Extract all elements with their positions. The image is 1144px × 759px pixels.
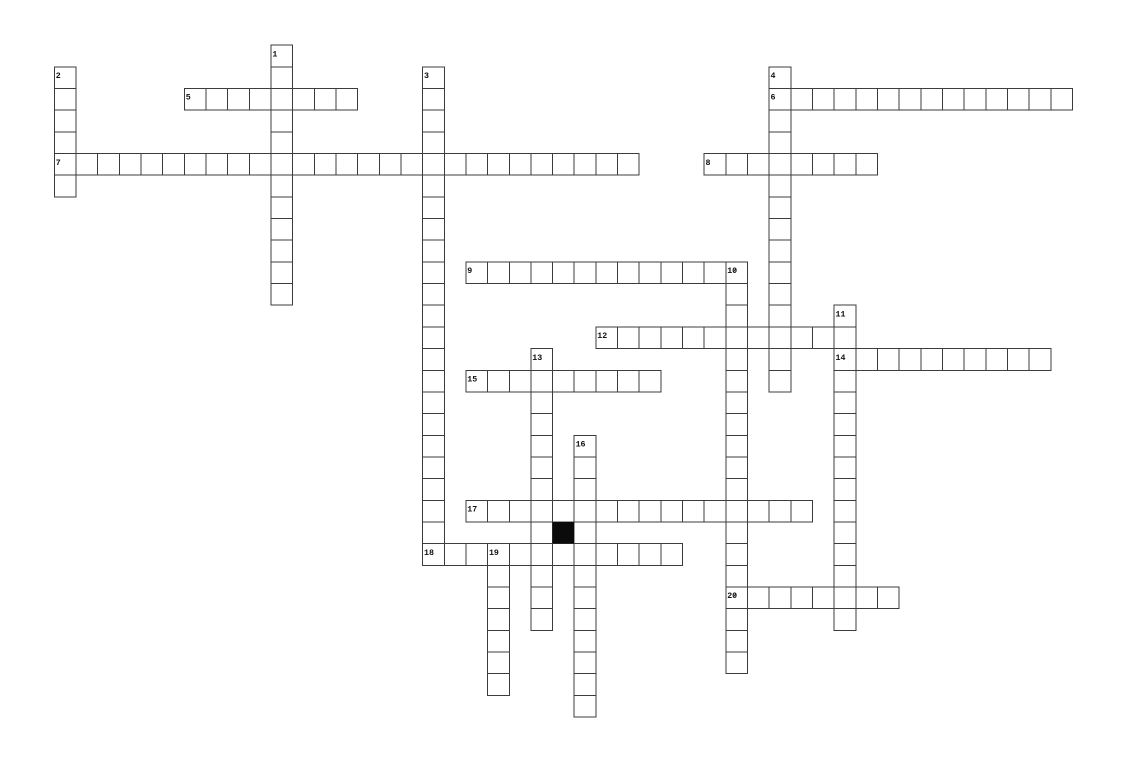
svg-text:14: 14 xyxy=(836,354,846,363)
svg-text:7: 7 xyxy=(56,159,61,168)
svg-text:12: 12 xyxy=(597,332,607,341)
svg-text:11: 11 xyxy=(836,310,846,319)
svg-text:1: 1 xyxy=(272,50,277,59)
svg-text:17: 17 xyxy=(467,505,477,514)
svg-text:9: 9 xyxy=(467,267,472,276)
svg-text:10: 10 xyxy=(727,267,737,276)
svg-text:18: 18 xyxy=(424,549,434,558)
svg-text:15: 15 xyxy=(467,375,477,384)
svg-text:6: 6 xyxy=(771,94,776,103)
svg-text:8: 8 xyxy=(706,159,711,168)
svg-text:16: 16 xyxy=(576,440,586,449)
svg-text:2: 2 xyxy=(56,72,61,81)
svg-text:4: 4 xyxy=(771,72,776,81)
svg-text:3: 3 xyxy=(424,72,429,81)
svg-text:20: 20 xyxy=(727,592,737,601)
svg-text:13: 13 xyxy=(532,354,542,363)
svg-text:5: 5 xyxy=(186,94,191,103)
svg-text:19: 19 xyxy=(489,549,499,558)
